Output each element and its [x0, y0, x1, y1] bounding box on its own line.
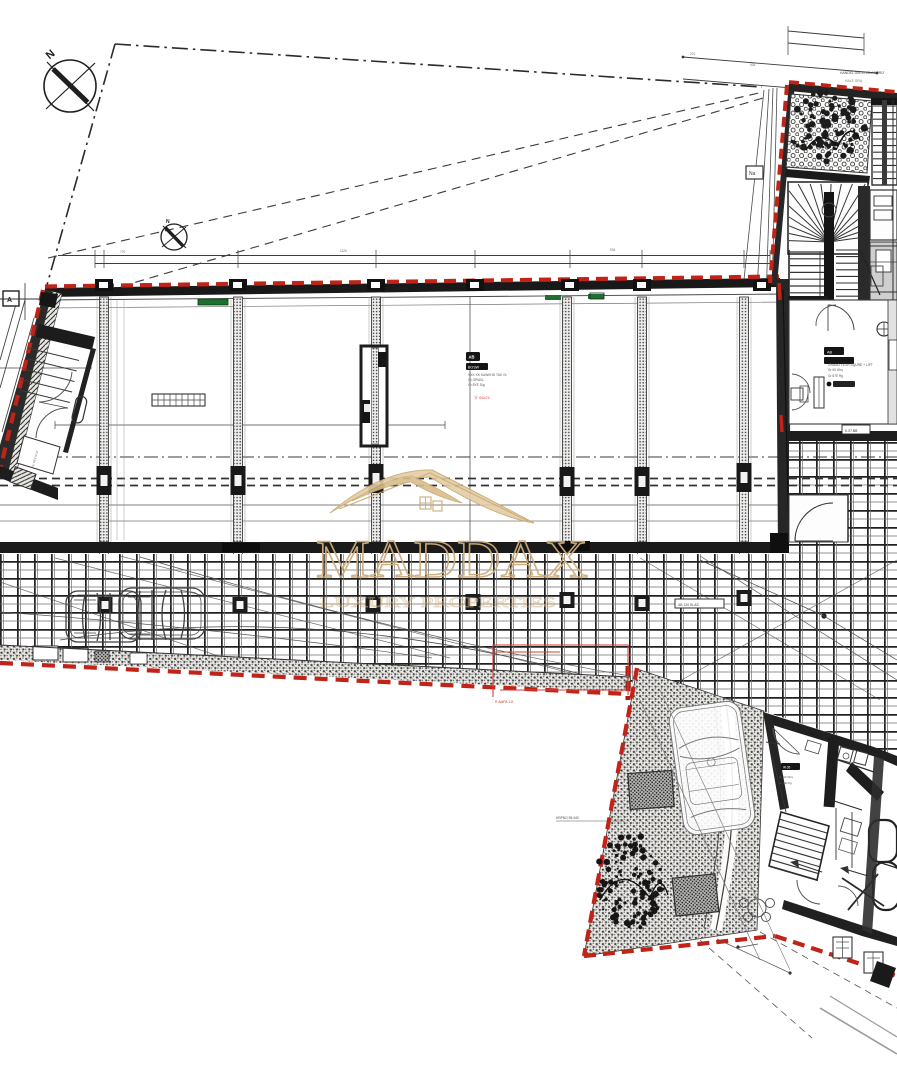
svg-text:Gr 44 Wrq: Gr 44 Wrq — [779, 775, 793, 779]
svg-text:K.07.BB: K.07.BB — [845, 429, 858, 433]
svg-text:221: 221 — [690, 52, 696, 56]
svg-text:AB: AB — [827, 351, 833, 355]
svg-text:Gr 65 Wrq: Gr 65 Wrq — [828, 368, 843, 372]
svg-text:Gr 8YE Dlg: Gr 8YE Dlg — [468, 383, 485, 387]
svg-text:XXX XK KAWKHD TAK Gr: XXX XK KAWKHD TAK Gr — [468, 373, 508, 377]
svg-text:N: N — [166, 219, 170, 225]
svg-text:W.05: W.05 — [783, 766, 790, 770]
svg-text:Gr 87E Rg: Gr 87E Rg — [828, 374, 843, 378]
svg-text:BOSW: BOSW — [468, 366, 480, 370]
svg-text:1120: 1120 — [340, 249, 347, 253]
svg-text:HALE GRA: HALE GRA — [845, 79, 863, 83]
svg-text:KRPNO 55.440: KRPNO 55.440 — [556, 816, 579, 820]
svg-text:R AMPA 1:8: R AMPA 1:8 — [495, 700, 513, 704]
svg-text:AB: AB — [469, 355, 475, 360]
svg-text:Gr 9E Rg: Gr 9E Rg — [779, 781, 792, 785]
svg-text:Gr GRWLL: Gr GRWLL — [468, 378, 484, 382]
svg-text:MADDAX: MADDAX — [316, 529, 588, 589]
svg-text:Ⓐ 65x21: Ⓐ 65x21 — [474, 394, 491, 400]
svg-text:Na: Na — [749, 171, 756, 177]
svg-text:AB 120 KLAS: AB 120 KLAS — [678, 603, 699, 607]
svg-text:934: 934 — [610, 248, 616, 252]
svg-text:LUXURY PROPERTIES: LUXURY PROPERTIES — [320, 595, 556, 611]
svg-text:HANDEL DIN STIGLA DPRIZ: HANDEL DIN STIGLA DPRIZ — [840, 71, 884, 75]
svg-text:GRAND FLOR SQURE + LIFT: GRAND FLOR SQURE + LIFT — [828, 363, 873, 367]
svg-text:770: 770 — [120, 250, 126, 254]
svg-text:A: A — [7, 297, 12, 304]
svg-text:534: 534 — [750, 63, 756, 67]
